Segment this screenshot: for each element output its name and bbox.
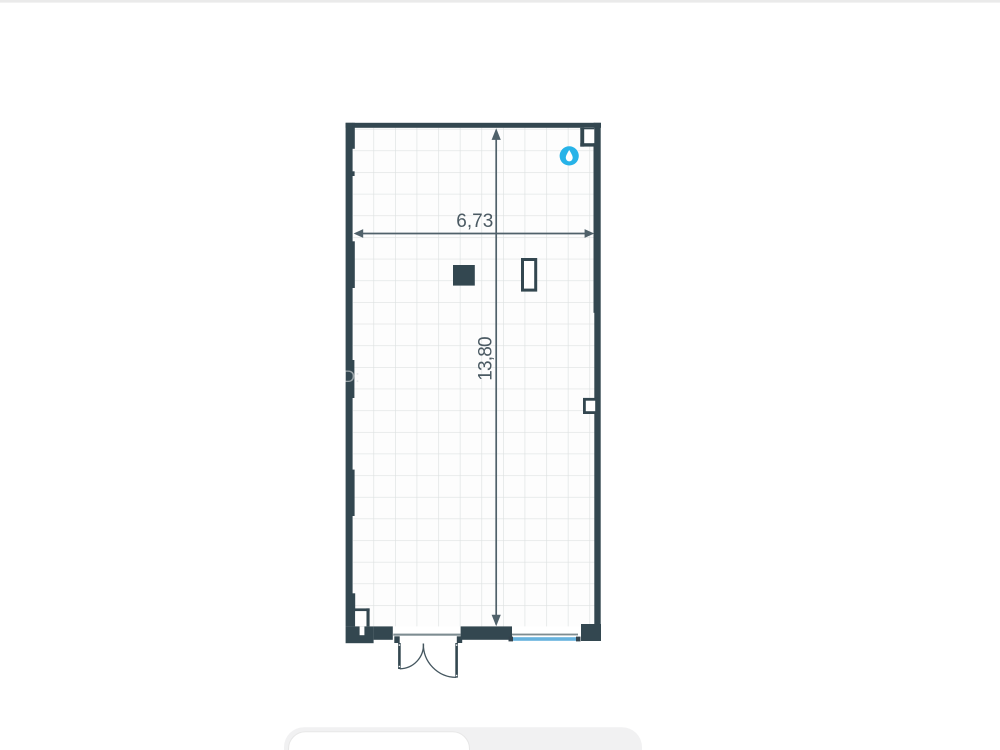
svg-text:D:: D: (343, 367, 360, 386)
svg-text:6,73: 6,73 (456, 211, 493, 232)
svg-text:13,80: 13,80 (476, 337, 497, 381)
